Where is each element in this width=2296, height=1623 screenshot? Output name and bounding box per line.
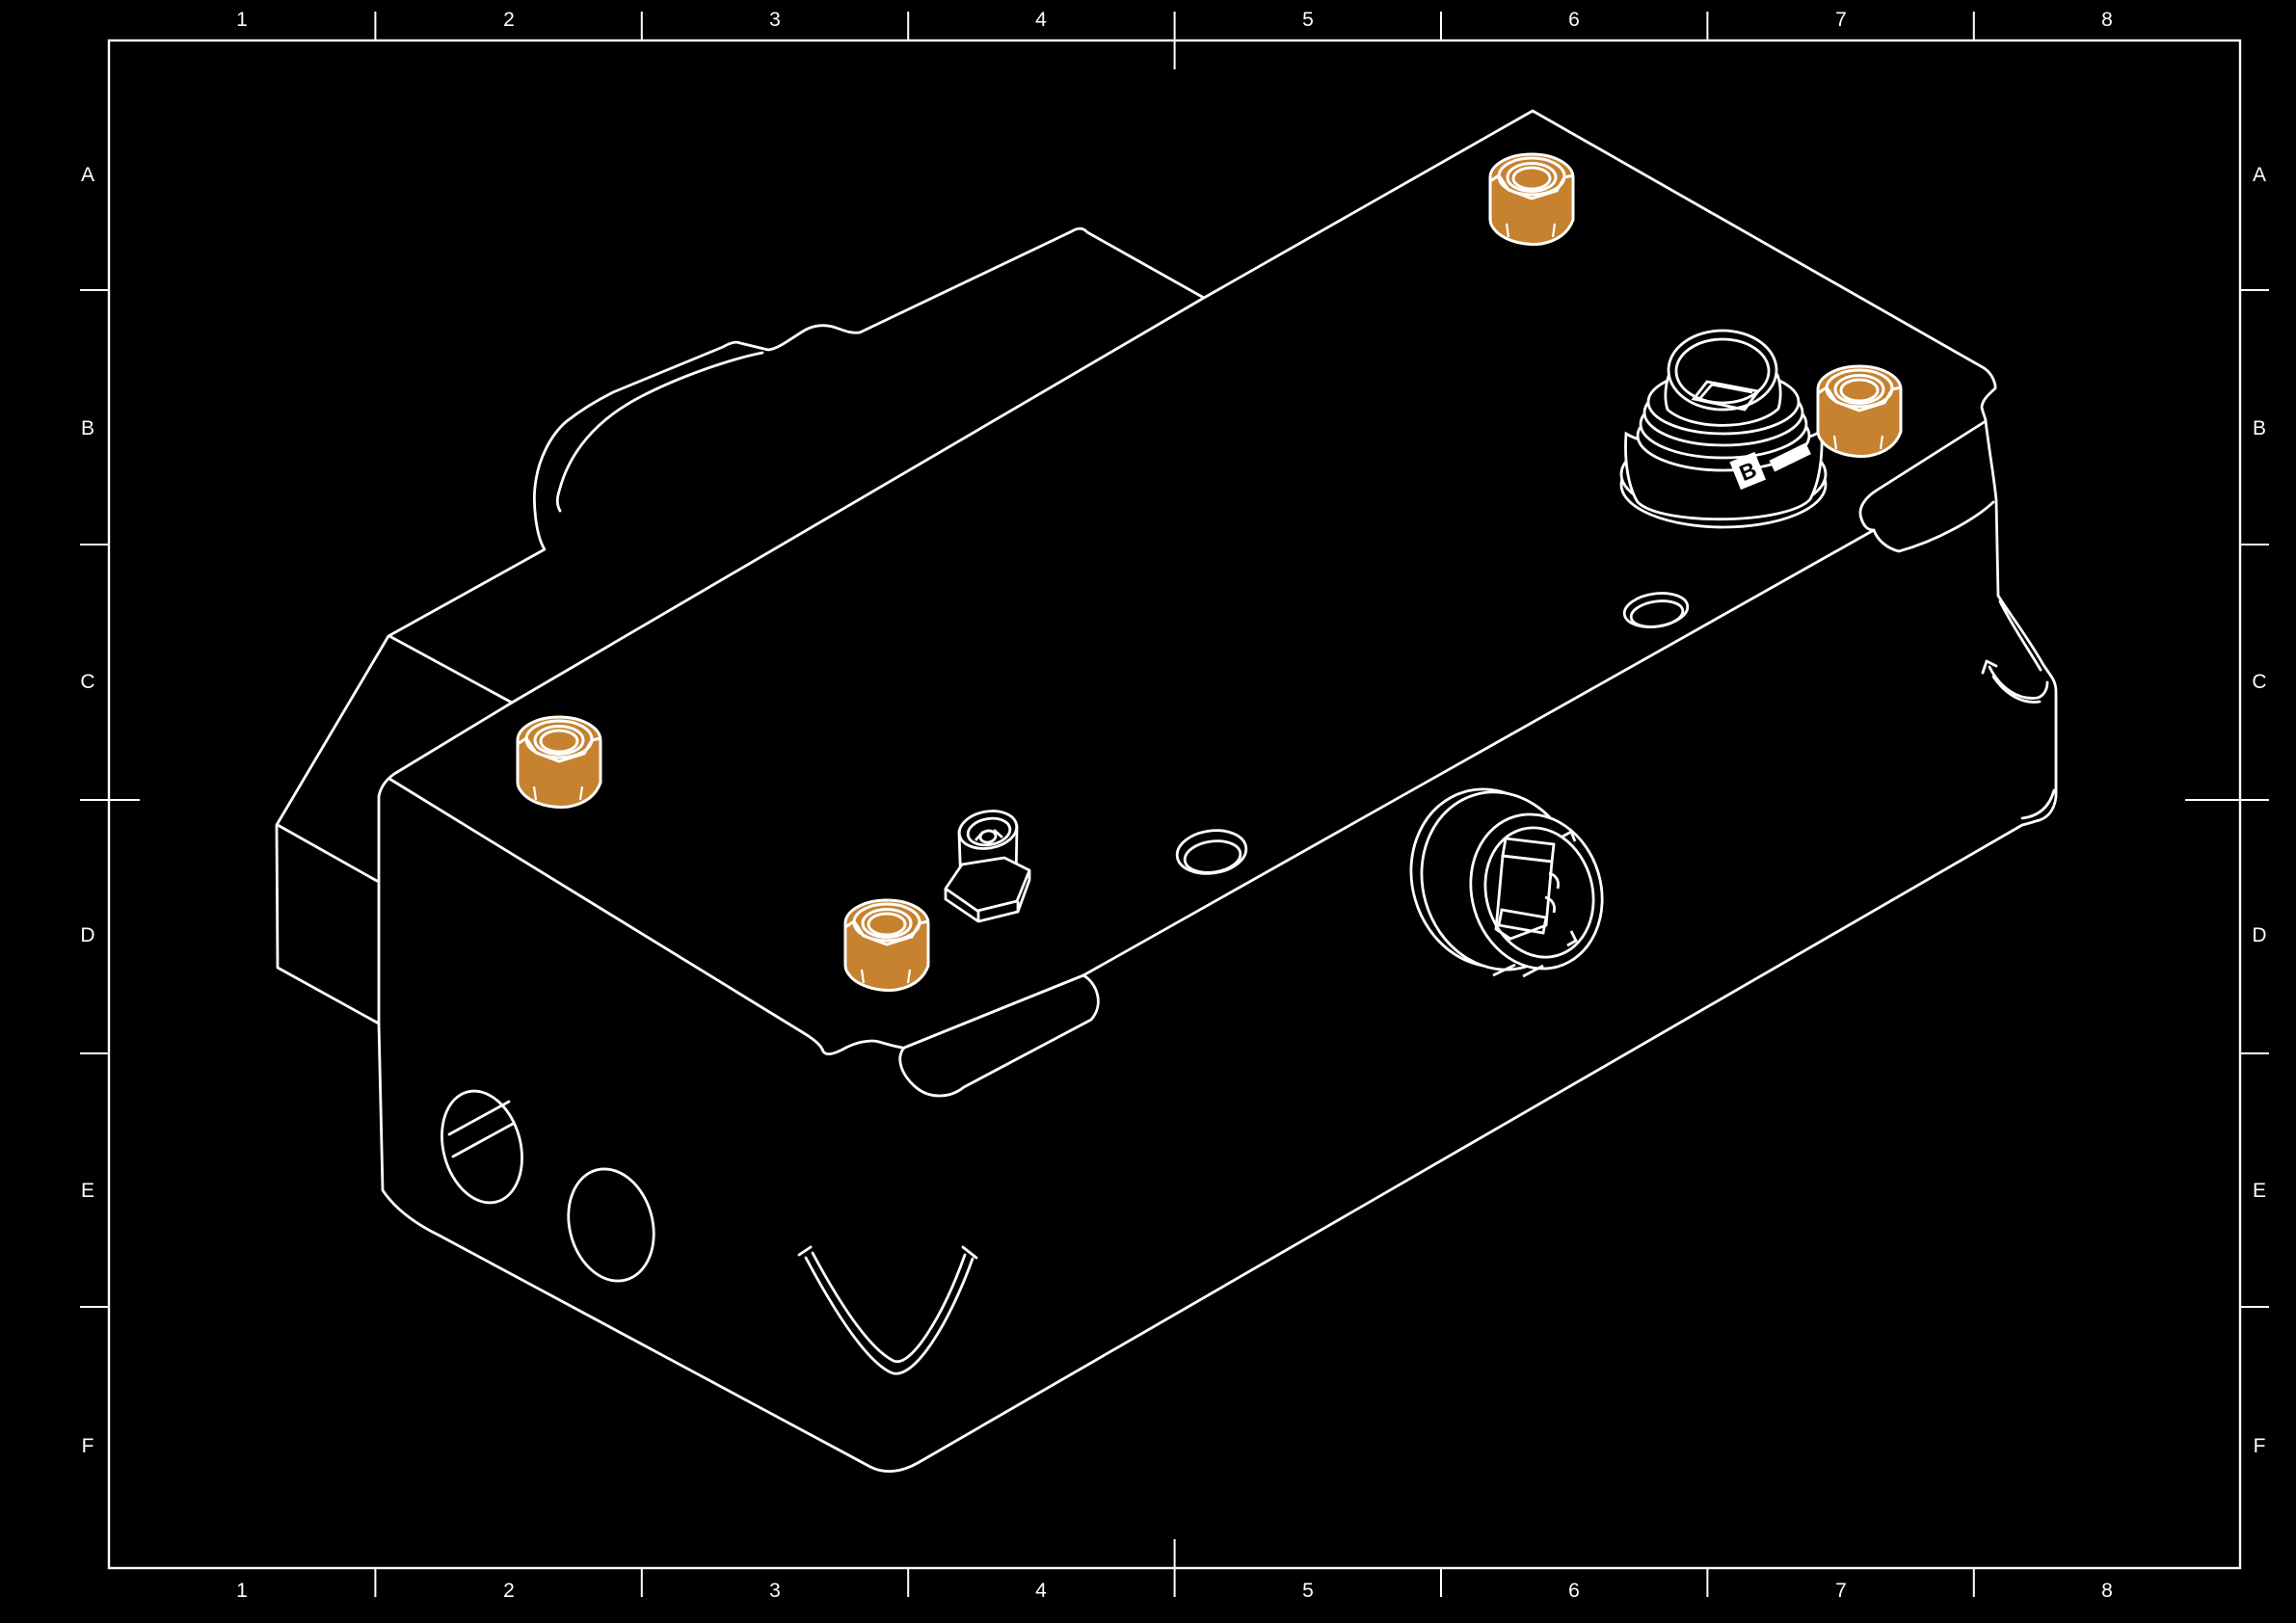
svg-text:2: 2 (503, 1580, 515, 1602)
svg-text:A: A (81, 164, 94, 186)
svg-text:B: B (81, 417, 94, 439)
svg-text:2: 2 (503, 9, 515, 31)
svg-text:D: D (2252, 924, 2266, 946)
svg-text:1: 1 (236, 9, 248, 31)
svg-text:5: 5 (1302, 9, 1314, 31)
svg-text:D: D (80, 924, 94, 946)
svg-text:4: 4 (1035, 1580, 1047, 1602)
svg-text:5: 5 (1302, 1580, 1314, 1602)
svg-text:6: 6 (1568, 1580, 1580, 1602)
svg-text:F: F (2254, 1435, 2266, 1457)
svg-text:7: 7 (1835, 1580, 1847, 1602)
svg-text:A: A (2253, 164, 2266, 186)
svg-text:C: C (80, 671, 94, 693)
svg-text:3: 3 (769, 9, 781, 31)
svg-text:E: E (2253, 1180, 2266, 1202)
svg-text:B: B (2253, 417, 2266, 439)
svg-text:8: 8 (2101, 9, 2113, 31)
svg-text:6: 6 (1568, 9, 1580, 31)
svg-text:F: F (82, 1435, 94, 1457)
svg-text:1: 1 (236, 1580, 248, 1602)
svg-text:4: 4 (1035, 9, 1047, 31)
svg-text:8: 8 (2101, 1580, 2113, 1602)
svg-text:7: 7 (1835, 9, 1847, 31)
svg-text:3: 3 (769, 1580, 781, 1602)
svg-text:E: E (81, 1180, 94, 1202)
svg-text:C: C (2252, 671, 2266, 693)
